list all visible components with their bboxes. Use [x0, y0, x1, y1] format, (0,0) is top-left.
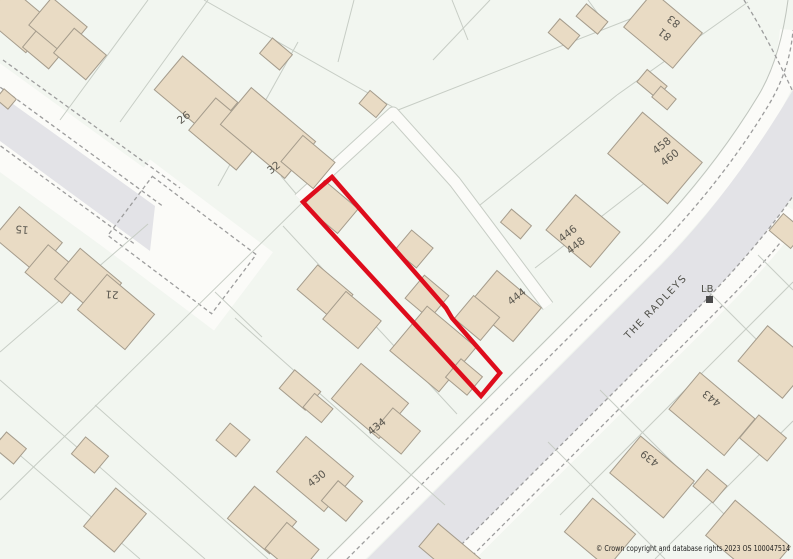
building: [738, 326, 793, 399]
building: [546, 195, 620, 268]
the-radleys-road: [327, 0, 793, 559]
building: [608, 112, 702, 204]
letter-box-label: LB: [701, 284, 714, 295]
map-canvas[interactable]: 263215218381458460446448444434430443439 …: [0, 0, 793, 559]
parcel-line: [480, 95, 617, 205]
building: [216, 423, 250, 457]
house-number-label: 21: [105, 288, 119, 301]
building: [0, 432, 26, 464]
house-number-label: 15: [15, 223, 29, 236]
building: [395, 230, 433, 268]
building: [260, 38, 293, 70]
parcel-line: [433, 0, 490, 60]
building: [610, 436, 694, 518]
building: [71, 437, 108, 473]
building: [84, 488, 147, 552]
building: [359, 90, 387, 117]
letter-box-icon: [706, 296, 713, 303]
parcel-line: [338, 0, 354, 62]
building: [693, 469, 727, 503]
building: [669, 372, 755, 455]
parcel-line: [758, 255, 793, 290]
parcel-line: [398, 12, 648, 110]
os-map: 263215218381458460446448444434430443439 …: [0, 0, 793, 559]
building: [501, 209, 532, 239]
parcel-line: [452, 0, 468, 40]
copyright-notice: © Crown copyright and database rights 20…: [596, 544, 790, 553]
building: [548, 19, 579, 50]
